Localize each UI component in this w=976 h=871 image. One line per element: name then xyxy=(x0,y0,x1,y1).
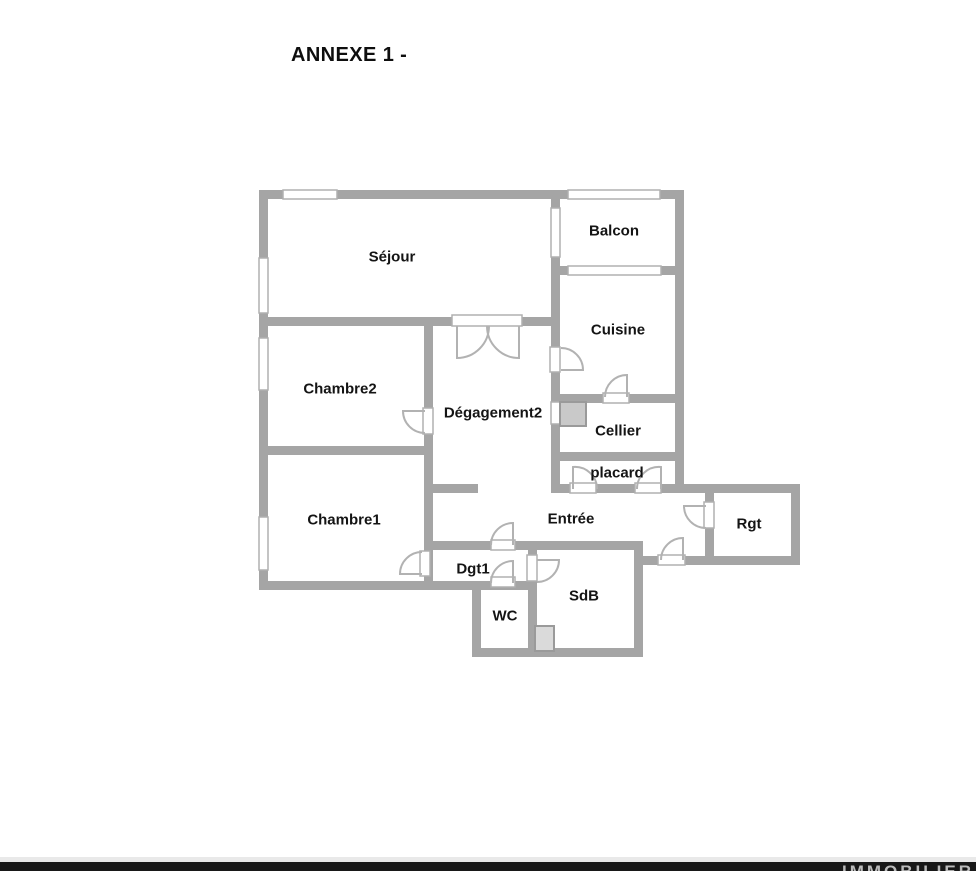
room-label-chambre2: Chambre2 xyxy=(303,381,376,398)
room-label-balcon: Balcon xyxy=(589,223,639,240)
room-label-entree: Entrée xyxy=(548,511,595,528)
window xyxy=(283,190,337,199)
double-door-right-swing xyxy=(487,326,519,358)
door-opening xyxy=(491,577,515,587)
window xyxy=(259,258,268,313)
window xyxy=(551,402,560,424)
floor-plan-svg: SéjourBalconCuisineChambre2Dégagement2Ce… xyxy=(0,0,976,871)
wall-segment xyxy=(259,446,433,455)
footer-watermark-band: IMMOBILIER xyxy=(0,862,976,871)
wall-segment xyxy=(675,190,684,493)
room-label-sdb: SdB xyxy=(569,588,599,605)
wall-segment xyxy=(472,648,643,657)
page: { "title": { "text": "ANNEXE 1 -" }, "wa… xyxy=(0,0,976,871)
chambre1-door-swing xyxy=(400,552,422,574)
wall-segment xyxy=(424,317,433,590)
door-opening xyxy=(603,393,629,403)
window xyxy=(259,338,268,390)
window xyxy=(259,517,268,570)
sdb-fixture xyxy=(535,626,554,651)
double-door-left-swing xyxy=(457,326,489,358)
cuisine-door-swing xyxy=(561,348,583,370)
wall-segment xyxy=(791,484,800,565)
door-opening xyxy=(452,315,522,326)
watermark-text: IMMOBILIER xyxy=(842,863,974,871)
window xyxy=(568,190,660,199)
room-label-wc: WC xyxy=(493,608,518,625)
window xyxy=(551,208,560,257)
cellier-appliance xyxy=(560,402,586,426)
door-opening xyxy=(491,540,515,550)
room-label-cuisine: Cuisine xyxy=(591,322,645,339)
wall-segment xyxy=(472,581,481,657)
chambre2-door-swing xyxy=(403,411,425,433)
room-label-dgt1: Dgt1 xyxy=(456,561,489,578)
room-label-degagement2: Dégagement2 xyxy=(444,405,542,422)
room-label-cellier: Cellier xyxy=(595,423,641,440)
sdb-door-swing xyxy=(537,560,559,582)
room-label-placard: placard xyxy=(590,465,643,482)
rgt-door-swing xyxy=(684,506,706,528)
room-label-chambre1: Chambre1 xyxy=(307,512,380,529)
door-opening xyxy=(635,483,661,493)
room-label-sejour: Séjour xyxy=(369,249,416,266)
door-opening xyxy=(550,347,560,372)
wall-segment xyxy=(552,452,684,461)
window xyxy=(568,266,661,275)
door-opening xyxy=(420,551,430,576)
door-opening xyxy=(527,555,537,581)
wall-segment xyxy=(433,484,478,493)
wall-segment xyxy=(634,541,643,657)
room-label-rgt: Rgt xyxy=(737,516,762,533)
